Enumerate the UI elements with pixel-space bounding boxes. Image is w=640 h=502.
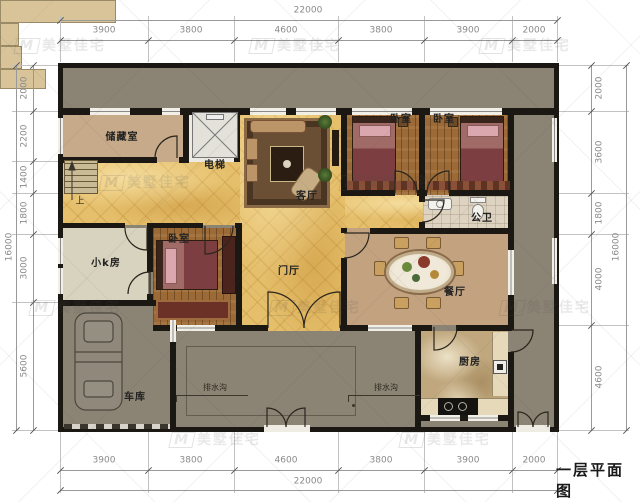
tv-console (332, 130, 339, 166)
kitchen-appliance-inner (497, 364, 503, 370)
dim-right-1: 2000 (596, 77, 605, 100)
dim-line-top-seg (60, 40, 557, 41)
label-living: 客厅 (296, 192, 318, 202)
dim-line-right-seg (591, 65, 592, 430)
dim-right-3: 1800 (596, 202, 605, 225)
dim-bottom-2: 3800 (180, 457, 203, 466)
label-k-room: 小k房 (91, 259, 121, 269)
label-storage: 储藏室 (106, 133, 139, 143)
label-dining: 餐厅 (444, 288, 466, 298)
bath-sink-bowl (436, 200, 444, 208)
dim-top-4: 3800 (370, 27, 393, 36)
label-bedroom-top-left: 卧室 (390, 115, 412, 125)
dim-bottom-1: 3900 (93, 457, 116, 466)
dim-left-2: 2200 (21, 125, 30, 148)
dim-right-4: 4000 (596, 268, 605, 291)
bedroom2-rug (427, 181, 510, 190)
dim-top-3: 4600 (275, 27, 298, 36)
watermark: M美墅佳宅 (170, 432, 261, 448)
dim-line-top-total (60, 20, 557, 21)
drain-leader-right (348, 395, 420, 396)
dim-right-2: 3600 (596, 141, 605, 164)
sofa-left-2 (246, 164, 258, 182)
drawing-title: 一层平面图 (556, 460, 640, 502)
burner-2 (458, 402, 467, 411)
label-bath: 公卫 (471, 214, 493, 224)
burner-1 (444, 402, 453, 411)
label-drain-right: 排水沟 (374, 384, 398, 392)
label-garage: 车库 (124, 393, 146, 403)
toilet-tank (470, 197, 486, 203)
stairs (64, 160, 98, 194)
label-elevator: 电梯 (204, 161, 226, 171)
dim-line-left-seg (33, 65, 34, 430)
dim-line-right-total (626, 65, 627, 430)
watermark: M美墅佳宅 (400, 432, 491, 448)
cabinet-west (156, 300, 230, 320)
label-bedroom-west: 卧室 (168, 235, 190, 245)
dim-bottom-6: 2000 (523, 457, 546, 466)
bedroom1-rug (347, 181, 417, 190)
label-stairs-up: 上 (75, 198, 84, 207)
label-bedroom-top-right: 卧室 (433, 115, 455, 125)
dim-left-3: 1400 (21, 166, 30, 189)
dim-left-4: 1800 (21, 202, 30, 225)
side-step-left (0, 23, 19, 46)
wardrobe-west (222, 236, 236, 294)
dim-left-6: 5600 (21, 355, 30, 378)
garage-door (64, 424, 170, 429)
bed-top-right (460, 116, 504, 188)
sofa-top (250, 120, 306, 133)
elevator-cab (206, 114, 224, 120)
label-kitchen: 厨房 (459, 358, 481, 368)
dim-left-5: 3000 (21, 257, 30, 280)
dim-bottom-3: 4600 (275, 457, 298, 466)
dim-top-5: 3900 (457, 27, 480, 36)
band-door-gap (516, 425, 550, 432)
dim-bottom-total: 22000 (294, 478, 323, 487)
porch-door-gap (264, 425, 310, 432)
dim-left-1: 2000 (21, 77, 30, 100)
dim-bottom-5: 3900 (457, 457, 480, 466)
dim-line-left-total (16, 65, 17, 430)
bed-west (156, 240, 218, 290)
dim-right-5: 4600 (596, 366, 605, 389)
dim-bottom-4: 3800 (370, 457, 393, 466)
label-drain-left: 排水沟 (203, 384, 227, 392)
coffee-table-bowl (283, 160, 291, 168)
floor-plan-canvas: 22000 3900 3800 4600 3800 3900 2000 3900… (0, 0, 640, 502)
dim-line-bottom-seg (60, 470, 557, 471)
dim-right-total: 16000 (613, 233, 622, 262)
dim-left-total: 16000 (6, 233, 15, 262)
sofa-left-1 (246, 138, 258, 160)
plant-top (318, 115, 332, 129)
plant-bottom (318, 168, 332, 182)
label-foyer: 门厅 (278, 267, 300, 277)
dim-top-total: 22000 (294, 7, 323, 16)
drain-leader-left (176, 395, 248, 396)
dim-top-2: 3800 (180, 27, 203, 36)
porch-drain-outline (186, 346, 356, 416)
dim-top-6: 2000 (523, 27, 546, 36)
bed-top-left (352, 116, 396, 188)
dim-top-1: 3900 (93, 27, 116, 36)
dim-line-bottom-total (60, 490, 557, 491)
